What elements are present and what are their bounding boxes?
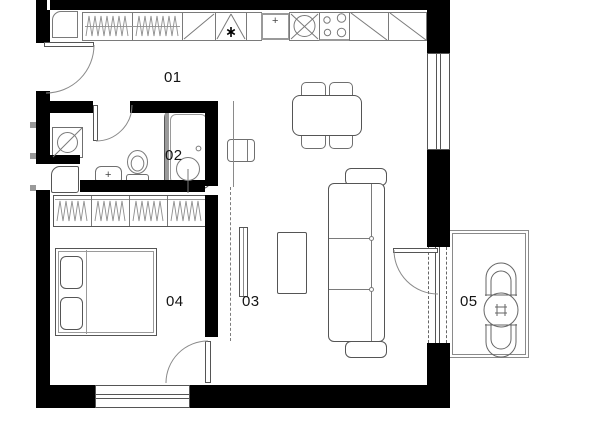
wall-bathroom-top-left bbox=[36, 101, 93, 113]
sink-cross-mark: + bbox=[272, 16, 278, 27]
window-glass-line bbox=[96, 394, 189, 399]
sliding-door-panel bbox=[239, 227, 248, 297]
installation-shaft bbox=[51, 166, 79, 193]
kitchen-cabinet-diagonal bbox=[349, 12, 389, 41]
wall-right-upper bbox=[427, 0, 450, 53]
wall-joint bbox=[47, 0, 50, 10]
panel-inner-line bbox=[243, 228, 244, 296]
wall-top bbox=[36, 0, 450, 10]
wardrobe-divider bbox=[167, 196, 168, 226]
room-label-03: 03 bbox=[242, 293, 260, 310]
floor-plan: + + bbox=[0, 0, 600, 426]
kitchen-tall-cabinet bbox=[182, 12, 216, 41]
kitchen-cabinet-diagonal bbox=[388, 12, 427, 41]
bathroom-door-swing bbox=[96, 105, 132, 141]
kitchen-cabinet-star bbox=[215, 12, 247, 41]
glazing-pane bbox=[435, 247, 440, 343]
sofa-seat-line bbox=[329, 289, 371, 290]
kitchen-hob-unit bbox=[319, 12, 350, 41]
wall-bathroom-top-right bbox=[130, 101, 218, 113]
sofa-armrest bbox=[345, 341, 387, 358]
sliding-door-track bbox=[233, 101, 234, 187]
kitchen-basin-unit bbox=[289, 12, 320, 41]
wall-bottom-left bbox=[36, 385, 95, 408]
window-bedroom-bottom bbox=[95, 385, 190, 408]
washing-machine bbox=[52, 127, 83, 158]
wardrobe-rod bbox=[85, 26, 180, 27]
glazing-dash-line bbox=[428, 247, 429, 343]
wall-bedroom-right bbox=[205, 195, 218, 337]
wall-left-upper bbox=[36, 10, 50, 43]
wall-right-lower bbox=[427, 343, 450, 406]
toilet-bowl bbox=[128, 151, 148, 174]
room-label-05: 05 bbox=[460, 293, 478, 310]
pillow bbox=[60, 297, 83, 330]
wall-right-middle bbox=[427, 150, 450, 247]
shelf-divider-line bbox=[247, 140, 248, 161]
sofa-seat-line bbox=[329, 238, 371, 239]
room-label-01: 01 bbox=[164, 69, 182, 86]
bedroom-door-swing bbox=[166, 341, 208, 383]
hall-shelf bbox=[227, 139, 255, 162]
room-label-04: 04 bbox=[166, 293, 184, 310]
room-label-02: 02 bbox=[165, 147, 183, 164]
window-right bbox=[427, 53, 450, 150]
balcony-door-leaf bbox=[393, 248, 438, 253]
bed-head-line bbox=[86, 250, 87, 334]
pillow bbox=[60, 256, 83, 289]
wall-bottom-right bbox=[190, 385, 450, 408]
kitchen-cabinet-narrow bbox=[246, 12, 262, 41]
sliding-door-path-dashed bbox=[230, 187, 231, 341]
window-glass-line bbox=[436, 54, 441, 149]
wardrobe-divider bbox=[91, 196, 92, 226]
dining-table bbox=[292, 95, 362, 136]
balcony-door-glazing bbox=[427, 247, 450, 343]
entry-cabinet bbox=[52, 11, 78, 38]
bedroom-door-leaf bbox=[205, 341, 211, 383]
sofa-body bbox=[328, 183, 385, 342]
sofa-backrest-line bbox=[371, 184, 372, 341]
wall-bathroom-bedroom-divider bbox=[80, 180, 205, 192]
entrance-door-leaf bbox=[44, 42, 94, 47]
sink-cross-mark: + bbox=[105, 170, 111, 181]
toilet-bowl-inner bbox=[131, 156, 144, 171]
wall-shaft-stub bbox=[50, 155, 80, 164]
wall-bathroom-right-upper bbox=[205, 113, 218, 186]
tv-cabinet bbox=[277, 232, 307, 294]
bathroom-door-leaf bbox=[93, 105, 98, 141]
wardrobe-divider bbox=[129, 196, 130, 226]
entrance-door-swing bbox=[46, 45, 94, 93]
bedroom-wardrobe bbox=[53, 195, 207, 227]
wall-left-lower bbox=[36, 190, 50, 386]
glazing-dash-line bbox=[446, 247, 447, 343]
wardrobe-top-line bbox=[55, 199, 205, 200]
